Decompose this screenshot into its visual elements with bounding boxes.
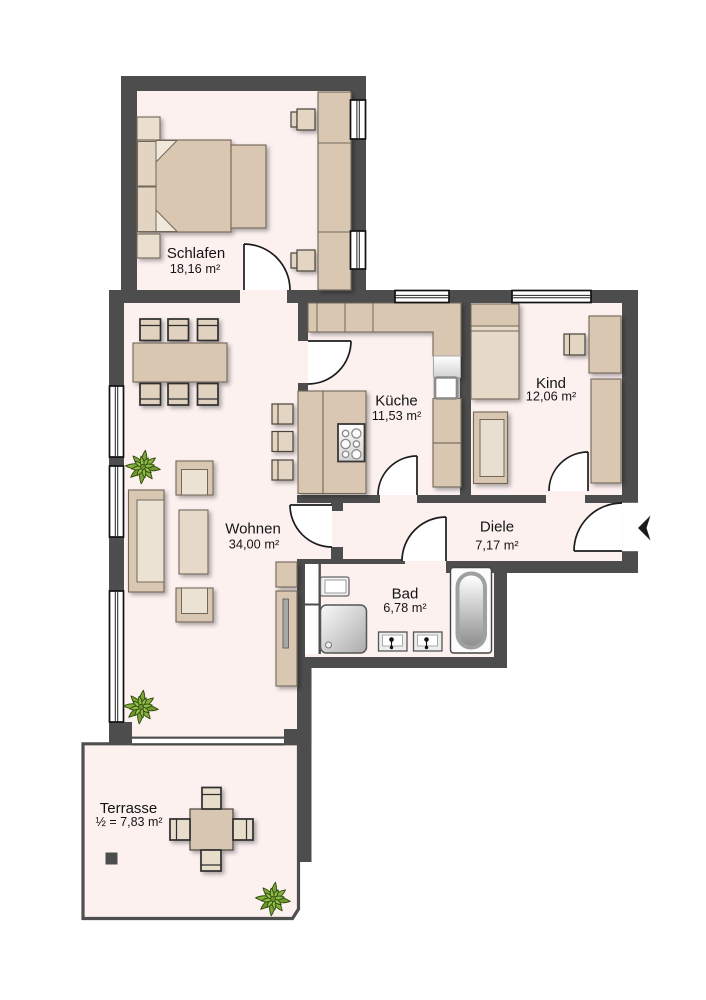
svg-text:12,06 m²: 12,06 m² [526, 389, 577, 404]
svg-text:½ = 7,83 m²: ½ = 7,83 m² [95, 815, 162, 829]
svg-text:Diele: Diele [480, 519, 514, 536]
svg-text:11,53 m²: 11,53 m² [372, 408, 422, 423]
svg-text:34,00 m²: 34,00 m² [229, 537, 280, 552]
svg-text:7,17 m²: 7,17 m² [475, 538, 519, 553]
svg-text:18,16 m²: 18,16 m² [170, 261, 221, 276]
svg-text:Schlafen: Schlafen [167, 245, 225, 262]
svg-text:Küche: Küche [375, 393, 418, 410]
svg-text:Wohnen: Wohnen [225, 521, 281, 538]
svg-text:6,78 m²: 6,78 m² [383, 600, 427, 615]
